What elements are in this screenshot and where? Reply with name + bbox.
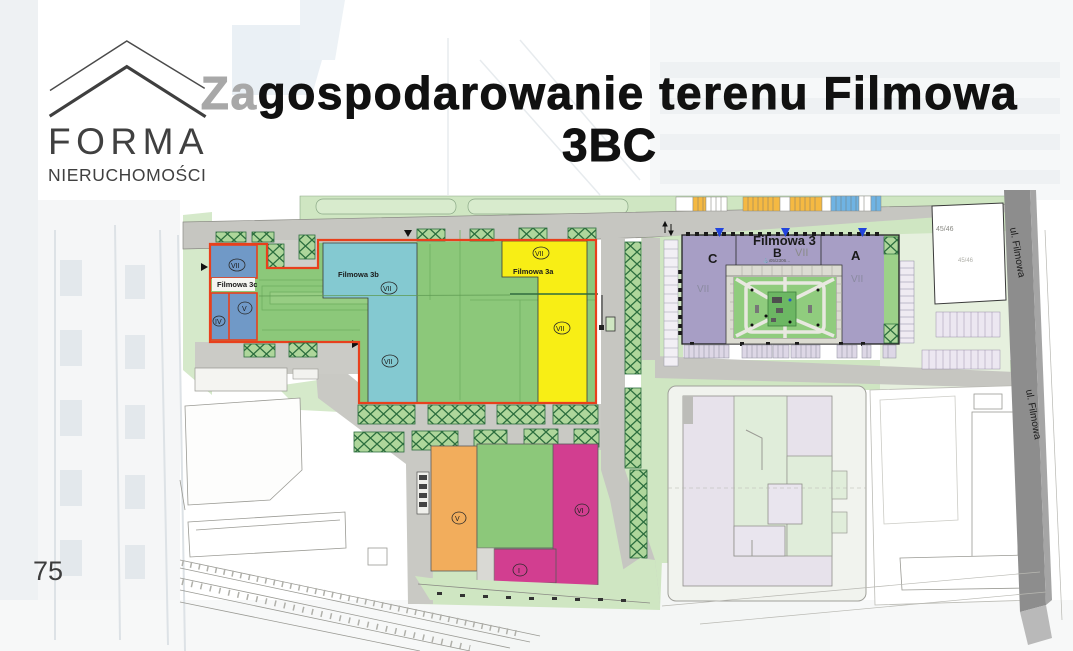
svg-text:VII: VII [231, 263, 240, 270]
svg-text:VII: VII [384, 359, 393, 366]
svg-text:VII: VII [795, 247, 808, 259]
svg-text:IV: IV [215, 319, 222, 326]
svg-text:VII: VII [851, 274, 863, 285]
svg-text:VI: VI [577, 508, 584, 515]
svg-text:V: V [455, 516, 460, 523]
svg-text:Filmowa 3b: Filmowa 3b [338, 270, 379, 279]
svg-text:45/46: 45/46 [936, 226, 954, 233]
svg-text:V: V [242, 306, 247, 313]
svg-text:Filmowa 3: Filmowa 3 [753, 233, 816, 248]
svg-text:I: I [518, 568, 520, 575]
svg-text:VII: VII [383, 286, 392, 293]
svg-text:A: A [851, 248, 861, 263]
svg-text:VII: VII [556, 326, 565, 333]
svg-text:45/46: 45/46 [958, 258, 974, 264]
svg-text:VII: VII [697, 284, 709, 295]
svg-text:Filmowa 3a: Filmowa 3a [513, 267, 554, 276]
svg-text:C: C [708, 251, 718, 266]
svg-text:VII: VII [535, 251, 544, 258]
svg-text:⚓ı05/2306…: ⚓ı05/2306… [763, 257, 791, 263]
svg-text:Filmowa 3c: Filmowa 3c [217, 280, 257, 289]
